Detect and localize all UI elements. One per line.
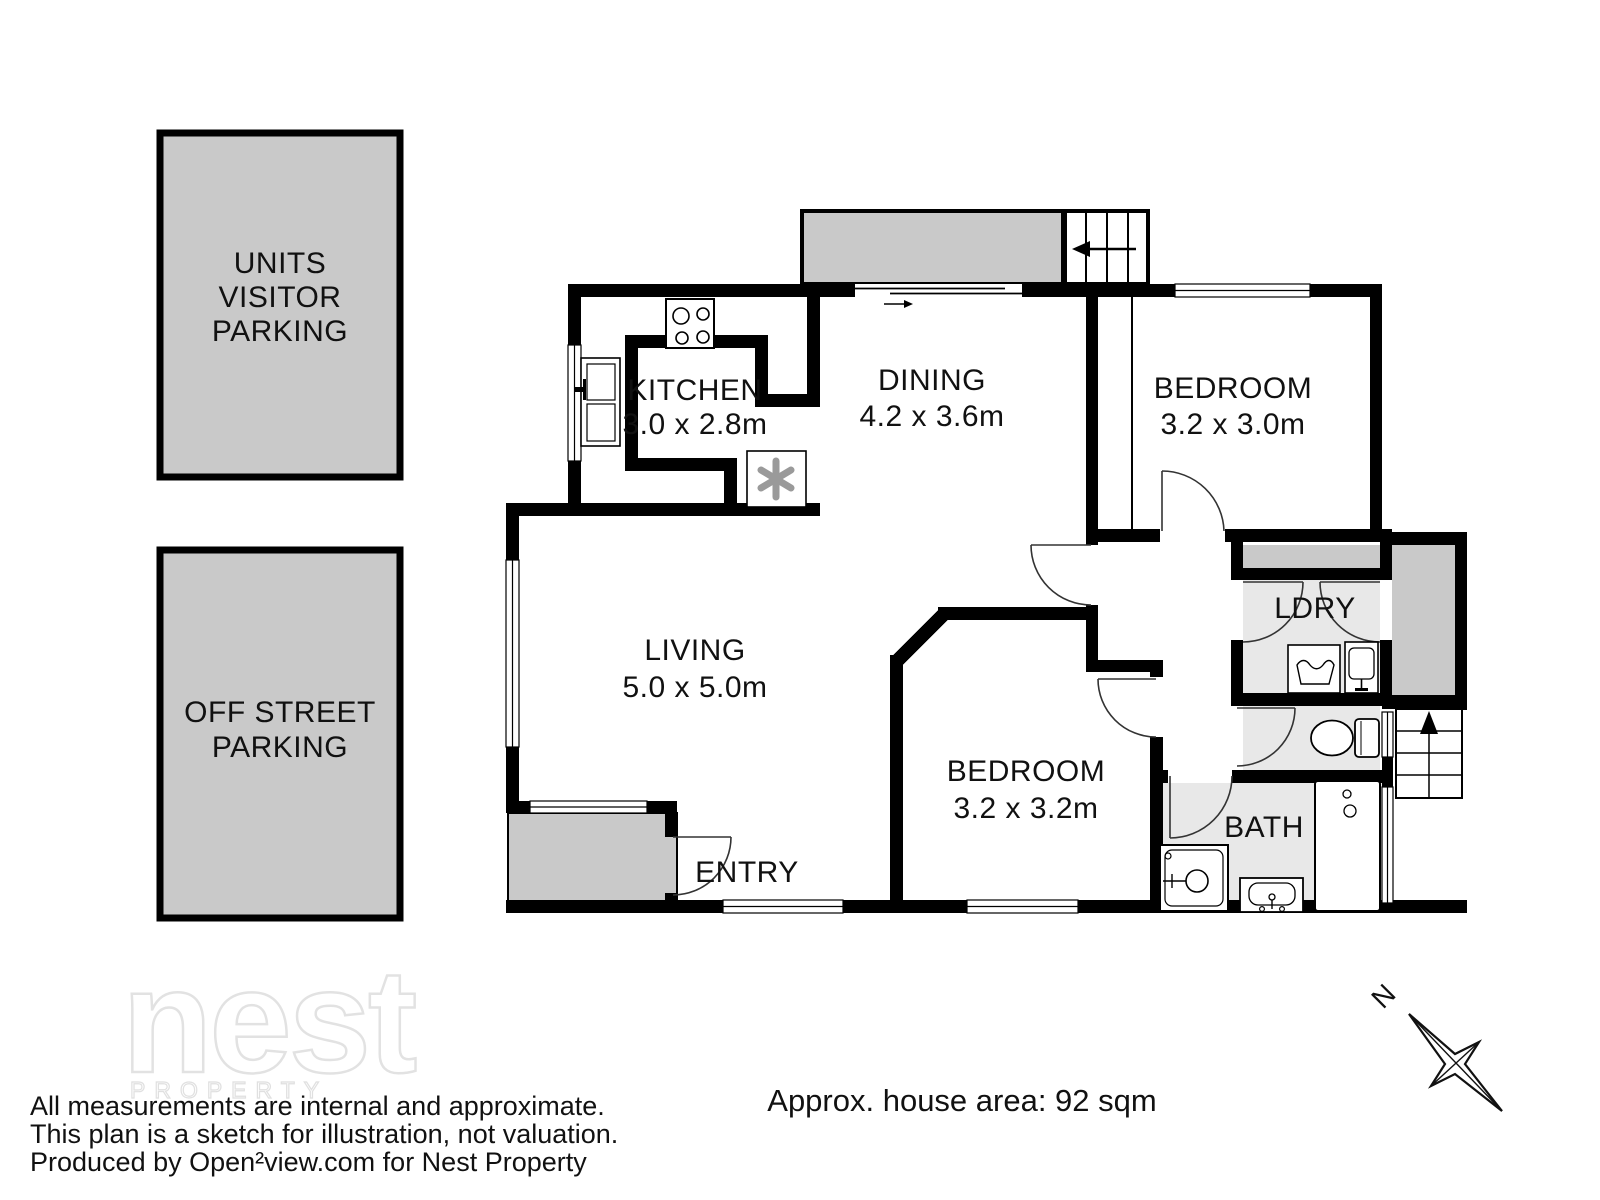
door-dining-hall xyxy=(1031,545,1091,605)
living-dims: 5.0 x 5.0m xyxy=(622,671,767,704)
door-bedroom2 xyxy=(1098,679,1156,737)
disclaimer-line3: Produced by Open²view.com for Nest Prope… xyxy=(30,1147,587,1177)
bath-label: BATH xyxy=(1224,811,1304,844)
parking-units-line1: UNITS xyxy=(234,247,327,280)
bedroom2-label: BEDROOM xyxy=(947,755,1106,788)
window-bedroom1-top xyxy=(1175,284,1310,297)
rear-deck xyxy=(802,211,1063,284)
door-bedroom1 xyxy=(1162,471,1224,531)
parking-units-line2: VISITOR xyxy=(219,281,342,314)
dining-dims: 4.2 x 3.6m xyxy=(859,400,1004,433)
bathtub-icon xyxy=(1315,781,1380,911)
rear-landing xyxy=(1392,545,1455,695)
washing-machine-icon xyxy=(1288,645,1340,693)
laundry-sink-icon xyxy=(1345,642,1378,693)
parking-box-off-street: OFF STREET PARKING xyxy=(160,550,400,918)
disclaimer-line2: This plan is a sketch for illustration, … xyxy=(30,1119,618,1149)
shower-icon xyxy=(1160,845,1228,911)
bedroom1-label: BEDROOM xyxy=(1154,372,1313,405)
window-porch-top xyxy=(530,801,647,813)
window-bedroom2-bottom xyxy=(967,900,1078,913)
window-living-left xyxy=(506,560,519,747)
window-bottom-entry xyxy=(723,900,843,913)
laundry-label: LDRY xyxy=(1274,592,1355,625)
rear-stairs xyxy=(1396,709,1462,798)
entry-porch xyxy=(508,813,677,908)
living-label: LIVING xyxy=(644,634,745,667)
bedroom1-dims: 3.2 x 3.0m xyxy=(1160,408,1305,441)
window-wc-right xyxy=(1382,712,1393,757)
floorplan-page: nest PROPERTY UNITS VISITOR PARKING OFF … xyxy=(0,0,1600,1200)
sliding-door-arrow-icon xyxy=(904,300,913,308)
disclaimer-line1: All measurements are internal and approx… xyxy=(30,1091,605,1121)
parking-units-line3: PARKING xyxy=(212,315,348,348)
dining-label: DINING xyxy=(878,364,986,397)
stove-icon xyxy=(666,299,714,348)
parking-box-units-visitor: UNITS VISITOR PARKING xyxy=(160,133,400,477)
nest-watermark: nest PROPERTY xyxy=(122,939,416,1104)
parking-offstreet-line2: PARKING xyxy=(212,731,348,764)
entry-label: ENTRY xyxy=(695,856,799,889)
sliding-door-dining xyxy=(855,284,1022,308)
footer: Approx. house area: 92 sqm All measureme… xyxy=(30,1083,1157,1177)
kitchen-label: KITCHEN xyxy=(627,374,762,407)
fridge-icon xyxy=(575,358,620,446)
toilet-icon xyxy=(1311,719,1379,757)
heater-icon xyxy=(747,451,806,507)
compass-icon: N xyxy=(1365,978,1502,1111)
house-area-text: Approx. house area: 92 sqm xyxy=(767,1083,1156,1118)
window-bath-right xyxy=(1382,787,1393,903)
bedroom2-dims: 3.2 x 3.2m xyxy=(953,792,1098,825)
floorplan-svg: nest PROPERTY UNITS VISITOR PARKING OFF … xyxy=(0,0,1600,1200)
kitchen-dims: 3.0 x 2.8m xyxy=(622,408,767,441)
parking-offstreet-line1: OFF STREET xyxy=(184,696,376,729)
compass-north-label: N xyxy=(1365,978,1401,1014)
window-kitchen-left xyxy=(568,345,581,461)
vanity-sink-icon xyxy=(1240,878,1303,912)
